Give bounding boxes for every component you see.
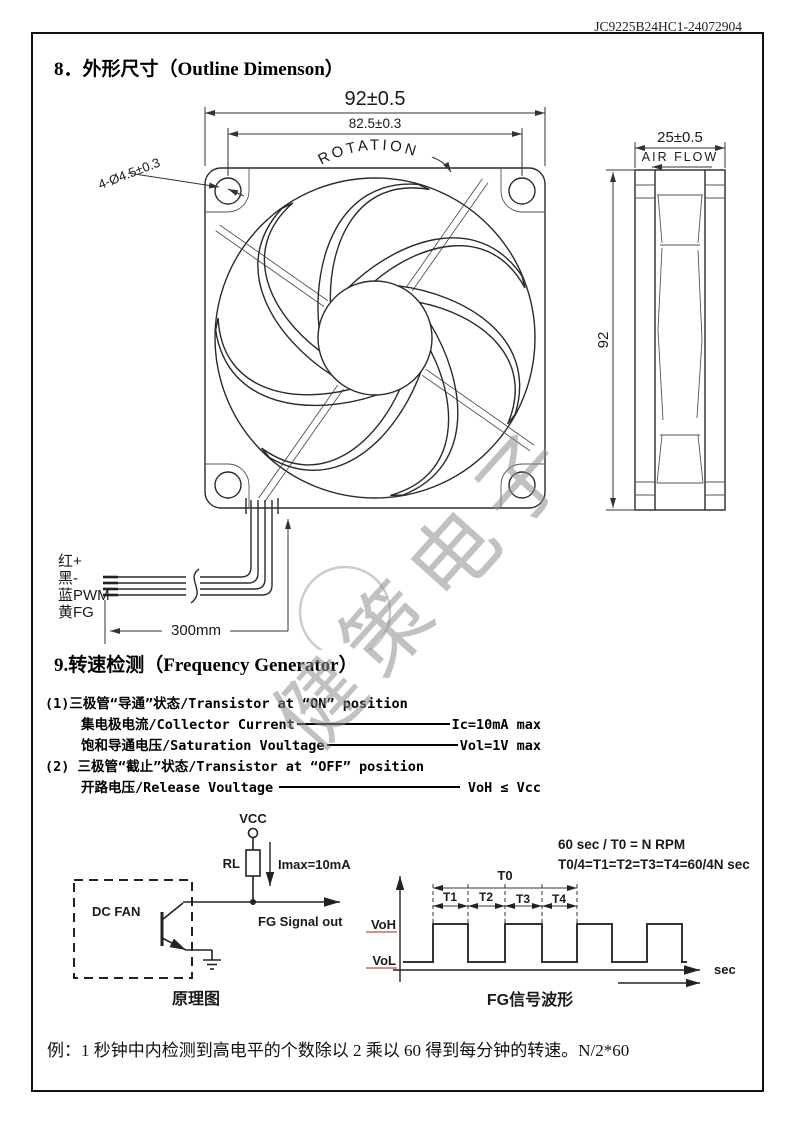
t4-label: T4 — [552, 892, 566, 906]
dim-width: 92±0.5 — [344, 88, 405, 110]
voh-label: VoH — [371, 917, 396, 932]
leader-line — [279, 786, 460, 788]
fan-side-view — [635, 170, 725, 510]
spec-label: 饱和导通电压/Saturation Voultage — [81, 734, 325, 754]
section8-title: 8．外形尺寸（Outline Dimenson） — [54, 54, 344, 81]
seal-watermark — [300, 567, 390, 650]
circuit-caption: 原理图 — [172, 990, 220, 1008]
spec-line-1: (1)三极管“导通”状态/Transistor at “ON” position — [45, 692, 541, 713]
rotation-arrow — [432, 157, 451, 172]
wire-label-yellow: 黄FG — [58, 604, 94, 621]
spec-label: 开路电压/Release Voultage — [81, 776, 273, 796]
imax-label: Imax=10mA — [278, 857, 351, 872]
t1-label: T1 — [443, 890, 457, 904]
fan-front-view — [196, 158, 546, 514]
vol-label: VoL — [372, 953, 396, 968]
mount-hole — [509, 178, 535, 204]
sec-label: sec — [714, 962, 736, 977]
dim-depth: 25±0.5 — [657, 129, 703, 146]
spec-line-3: 饱和导通电压/Saturation Voultage Vol=1V max — [45, 734, 541, 755]
mount-hole — [215, 472, 241, 498]
t3-label: T3 — [516, 892, 530, 906]
spec-value: Vol=1V max — [460, 738, 541, 754]
airflow-label: AIR FLOW — [642, 150, 718, 164]
fg-circuit: VCC RL Imax=10mA FG Signal out DC FAN — [74, 811, 351, 1008]
wire-label-blue: 蓝PWM — [58, 587, 110, 604]
dim-hole-pitch: 82.5±0.3 — [349, 116, 401, 131]
fg-out-label: FG Signal out — [258, 914, 343, 929]
example-note: 例：1 秒钟中内检测到高电平的个数除以 2 乘以 60 得到每分钟的转速。N/2… — [47, 1036, 759, 1061]
wire-label-red: 红+ — [58, 553, 82, 570]
rl-label: RL — [223, 856, 240, 871]
t0-label: T0 — [497, 868, 512, 883]
spec-line-5: 开路电压/Release Voultage VoH ≤ Vcc — [45, 776, 541, 797]
leader-line — [327, 744, 458, 746]
section9-title: 9.转速检测（Frequency Generator） — [54, 650, 358, 677]
mount-hole — [215, 178, 241, 204]
t2-label: T2 — [479, 890, 493, 904]
wire-label-black: 黑- — [58, 570, 78, 587]
datasheet-page: JC9225B24HC1-24072904 8．外形尺寸（Outline Dim… — [0, 0, 794, 1123]
lead-wires: 红+ 黑- 蓝PWM 黄FG 300mm — [58, 500, 288, 644]
transistor — [162, 903, 186, 950]
document-number: JC9225B24HC1-24072904 — [594, 19, 742, 35]
front-view-dimensions: 92±0.5 82.5±0.3 ROTATION 4-Ø4.5±0.3 — [96, 88, 545, 196]
dim-height: 92 — [595, 332, 612, 349]
outline-drawing: 92±0.5 82.5±0.3 ROTATION 4-Ø4.5±0.3 — [0, 80, 794, 650]
spec-label: 集电极电流/Collector Current — [81, 713, 295, 733]
mount-hole — [509, 472, 535, 498]
dc-fan-label: DC FAN — [92, 904, 140, 919]
leader-line — [297, 723, 450, 725]
fan-blades — [196, 158, 546, 506]
spec-line-2: 集电极电流/Collector Current Ic=10mA max — [45, 713, 541, 734]
wire-length-dim: 300mm — [171, 622, 221, 639]
fg-spec-block: (1)三极管“导通”状态/Transistor at “ON” position… — [45, 692, 541, 797]
spec-line-4: (2) 三极管“截止”状态/Transistor at “OFF” positi… — [45, 755, 541, 776]
spec-value: VoH ≤ Vcc — [468, 780, 541, 796]
rotation-label: ROTATION — [315, 137, 420, 169]
circuit-and-waveform: VCC RL Imax=10mA FG Signal out DC FAN — [0, 800, 794, 1040]
rpm-formula: 60 sec / T0 = N RPM — [558, 837, 685, 852]
dc-fan-box — [74, 880, 192, 978]
vcc-label: VCC — [239, 811, 267, 826]
square-wave — [403, 924, 687, 962]
svg-text:ROTATION: ROTATION — [315, 137, 420, 169]
spec-value: Ic=10mA max — [452, 717, 541, 733]
waveform-caption: FG信号波形 — [487, 990, 573, 1009]
vcc-terminal — [249, 829, 258, 838]
period-formula: T0/4=T1=T2=T3=T4=60/4N sec — [558, 857, 750, 872]
resistor-rl — [246, 850, 260, 876]
fg-waveform: 60 sec / T0 = N RPM T0/4=T1=T2=T3=T4=60/… — [366, 837, 750, 1009]
